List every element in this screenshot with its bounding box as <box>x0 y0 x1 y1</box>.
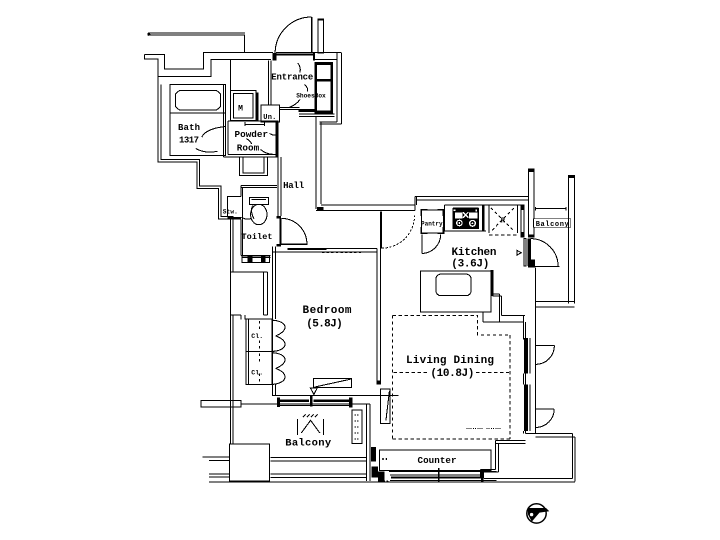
svg-text:Cl.: Cl. <box>251 333 263 340</box>
svg-text:(3.6J): (3.6J) <box>451 259 489 271</box>
svg-text:ShoesBox: ShoesBox <box>296 93 326 100</box>
svg-text:(5.8J): (5.8J) <box>306 319 343 331</box>
svg-text:Bath: Bath <box>178 123 200 133</box>
svg-text:Entrance: Entrance <box>271 73 313 83</box>
svg-text:Living Dining: Living Dining <box>406 355 494 367</box>
svg-text:Hall: Hall <box>283 181 305 191</box>
svg-text:Counter: Counter <box>418 455 457 466</box>
svg-text:Cl.: Cl. <box>251 370 263 377</box>
svg-text:M: M <box>238 104 243 113</box>
svg-text:Kitchen: Kitchen <box>452 247 497 259</box>
svg-text:Toilet: Toilet <box>242 232 273 242</box>
svg-text:(10.8J): (10.8J) <box>430 368 474 380</box>
svg-text:Un.: Un. <box>263 114 276 122</box>
svg-text:Pantry: Pantry <box>421 221 443 228</box>
svg-text:Balcony: Balcony <box>285 438 332 450</box>
svg-text:Stw.: Stw. <box>223 208 238 215</box>
svg-text:Balcony: Balcony <box>536 221 570 229</box>
svg-text:Powder: Powder <box>235 129 268 140</box>
svg-text:Bedroom: Bedroom <box>303 305 352 317</box>
svg-text:1317: 1317 <box>179 136 199 146</box>
svg-text:Room: Room <box>237 143 260 154</box>
